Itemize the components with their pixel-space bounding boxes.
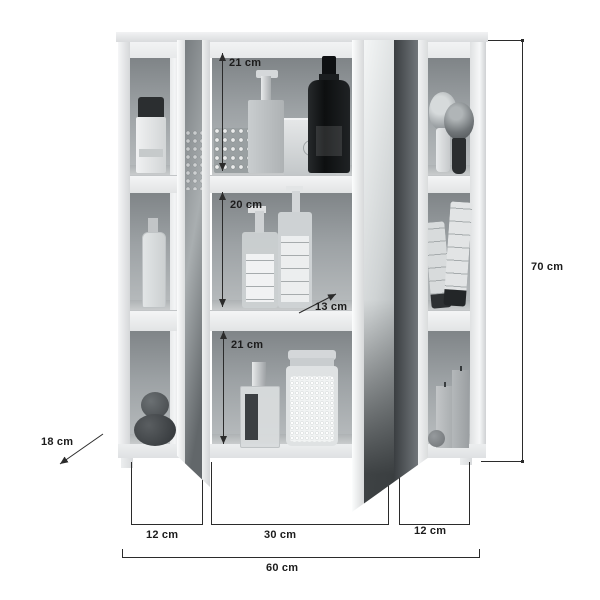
dim-label-cabinet-depth: 18 cm [41, 436, 73, 448]
dim-label-right-section-width: 12 cm [414, 525, 446, 537]
dim-label-top-compartment-height: 21 cm [229, 57, 261, 69]
product-dimension-diagram: 21 cm 20 cm 13 cm 21 cm 18 cm 70 cm 12 c… [0, 0, 600, 600]
dim-label-left-section-width: 12 cm [146, 529, 178, 541]
dim-label-bottom-compartment-height: 21 cm [231, 339, 263, 351]
dim-label-shelf-depth: 13 cm [315, 301, 347, 313]
dim-label-center-section-width: 30 cm [264, 529, 296, 541]
dim-label-total-width: 60 cm [266, 562, 298, 574]
dimension-lines [0, 0, 600, 600]
dim-label-middle-compartment-height: 20 cm [230, 199, 262, 211]
dim-label-total-height: 70 cm [531, 261, 563, 273]
